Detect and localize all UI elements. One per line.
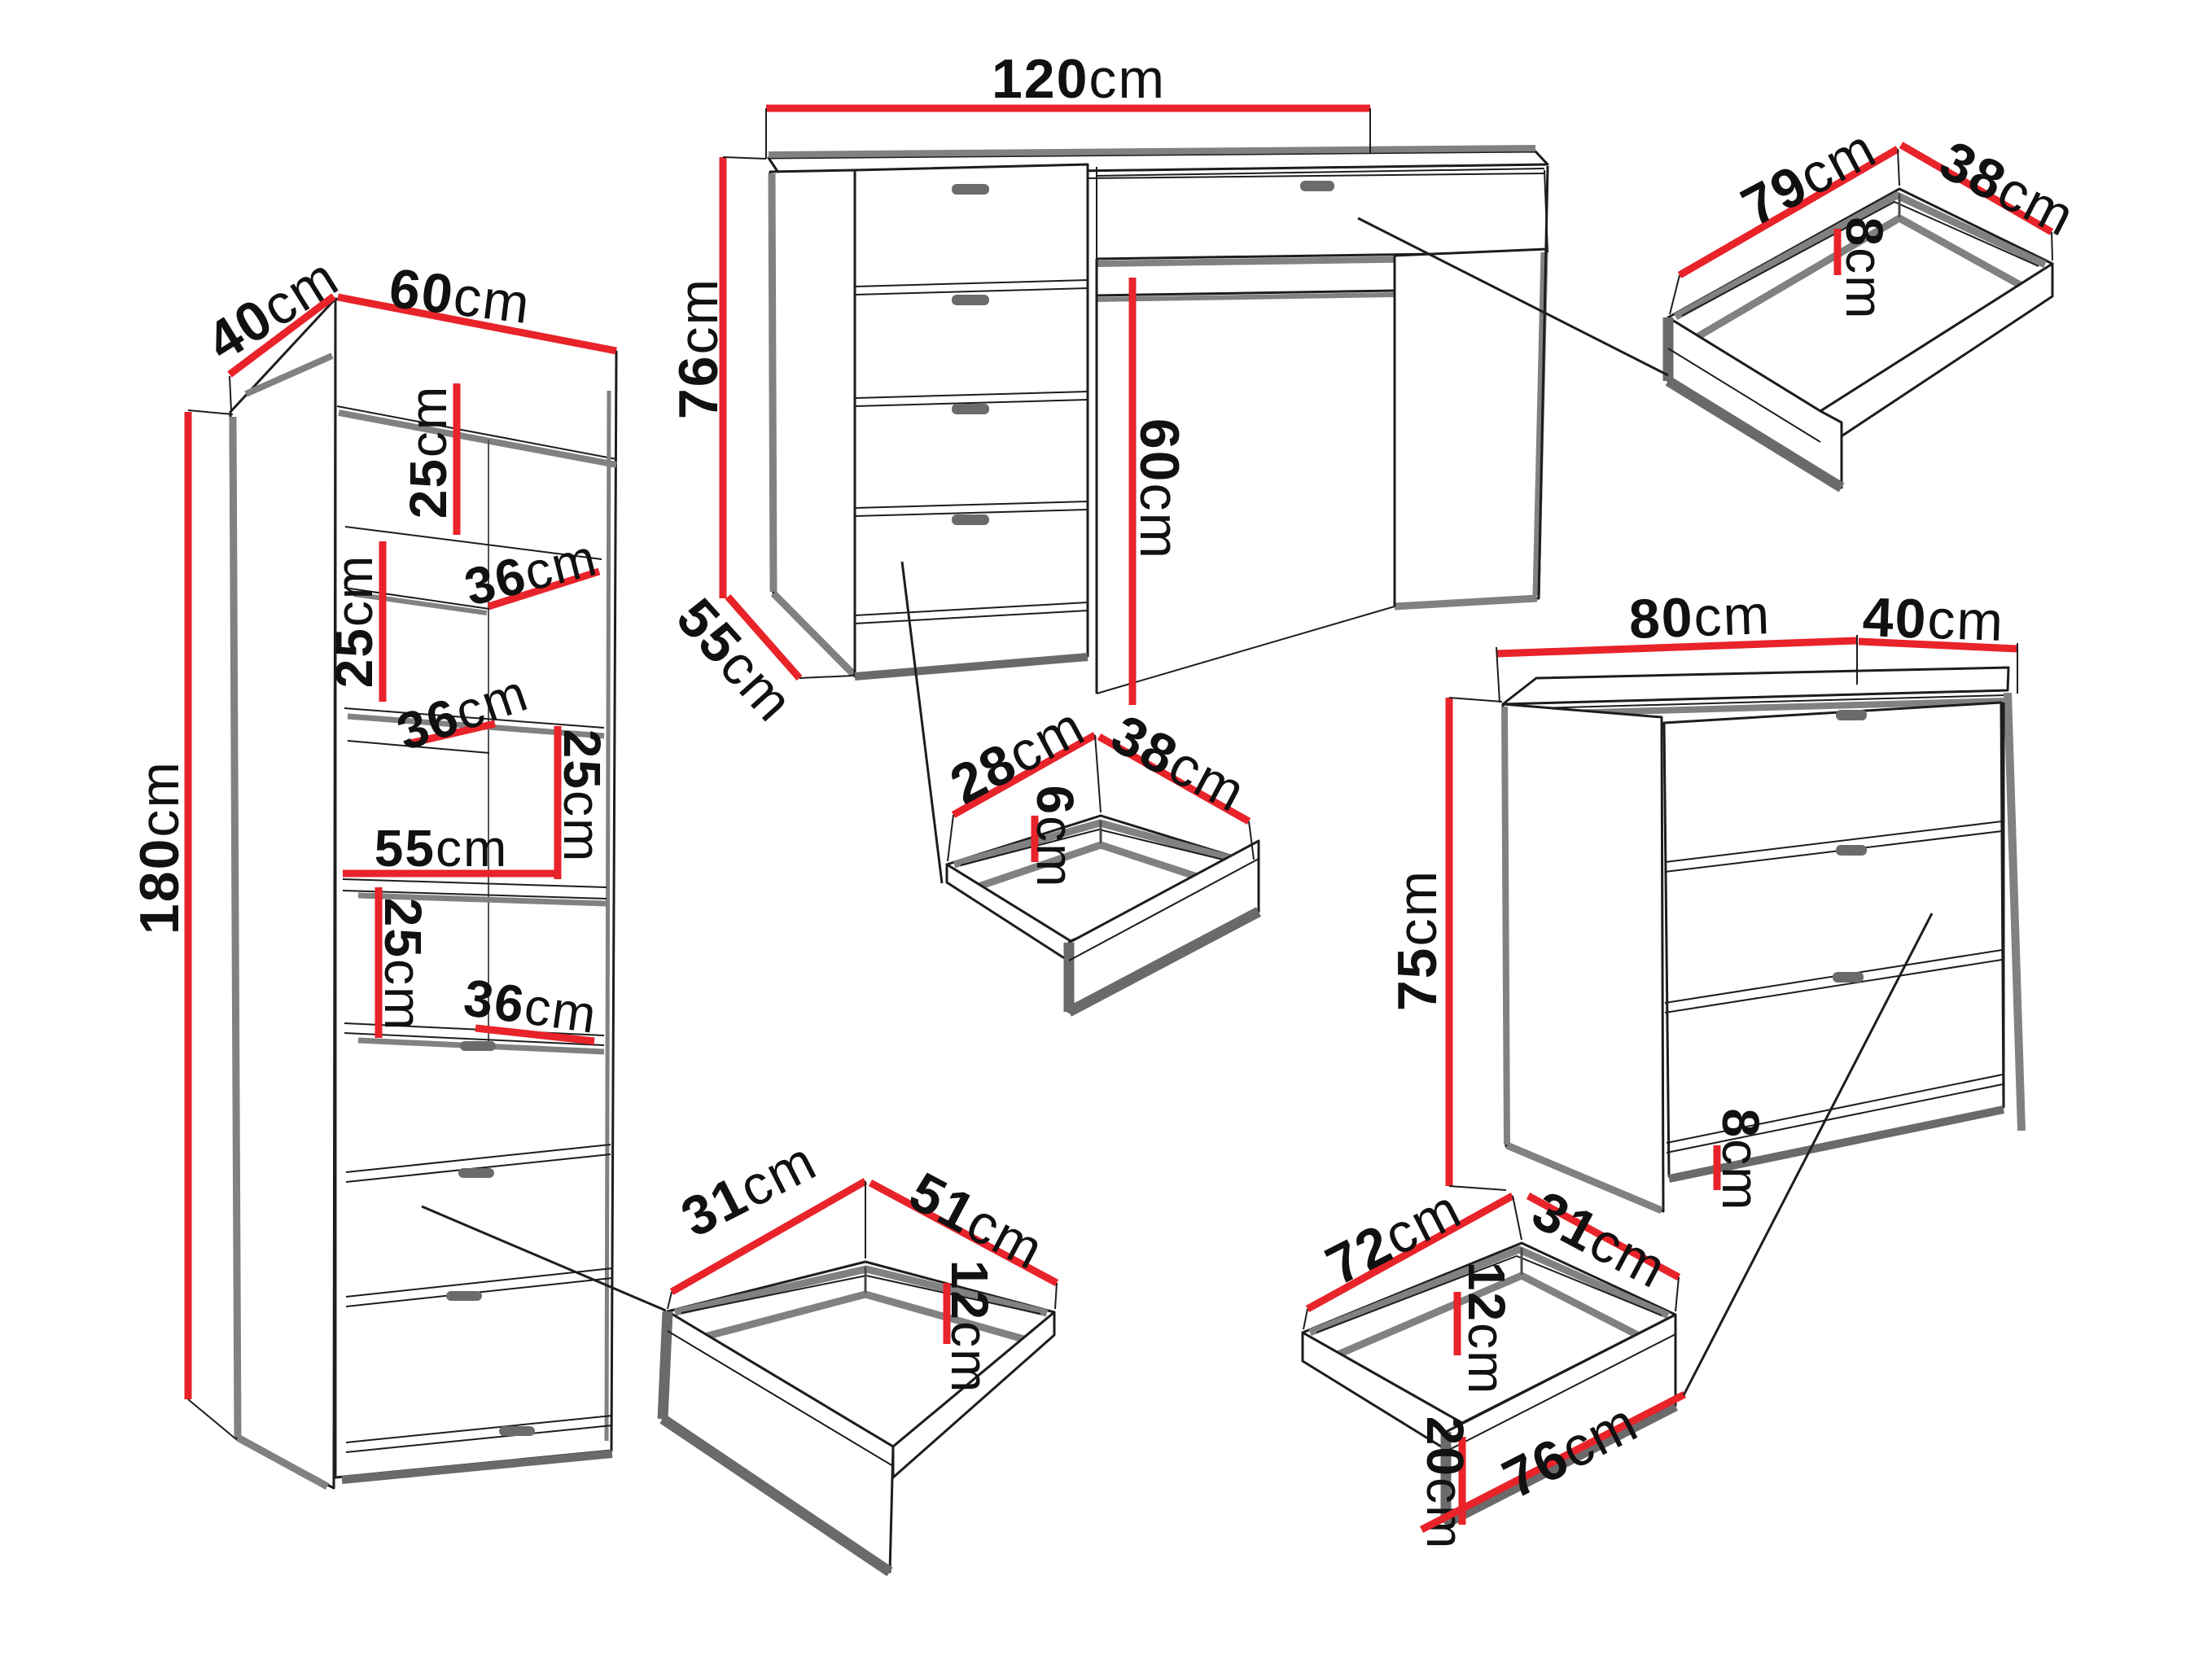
svg-text:8cm: 8cm [1711, 1109, 1770, 1212]
svg-text:55cm: 55cm [375, 819, 509, 878]
svg-text:180cm: 180cm [129, 760, 191, 935]
svg-text:76cm: 76cm [668, 278, 729, 419]
svg-text:25cm: 25cm [374, 898, 432, 1032]
svg-text:120cm: 120cm [992, 48, 1166, 110]
svg-text:25cm: 25cm [399, 385, 458, 519]
svg-text:8cm: 8cm [1835, 217, 1894, 321]
svg-text:40cm: 40cm [1862, 586, 2006, 653]
svg-text:25cm: 25cm [553, 729, 611, 864]
svg-text:12cm: 12cm [1457, 1262, 1516, 1396]
svg-text:25cm: 25cm [325, 554, 383, 689]
svg-text:6cm: 6cm [1026, 786, 1084, 889]
svg-text:75cm: 75cm [1386, 869, 1448, 1011]
svg-text:80cm: 80cm [1628, 584, 1772, 650]
svg-text:60cm: 60cm [1128, 418, 1190, 560]
svg-text:12cm: 12cm [940, 1260, 999, 1394]
